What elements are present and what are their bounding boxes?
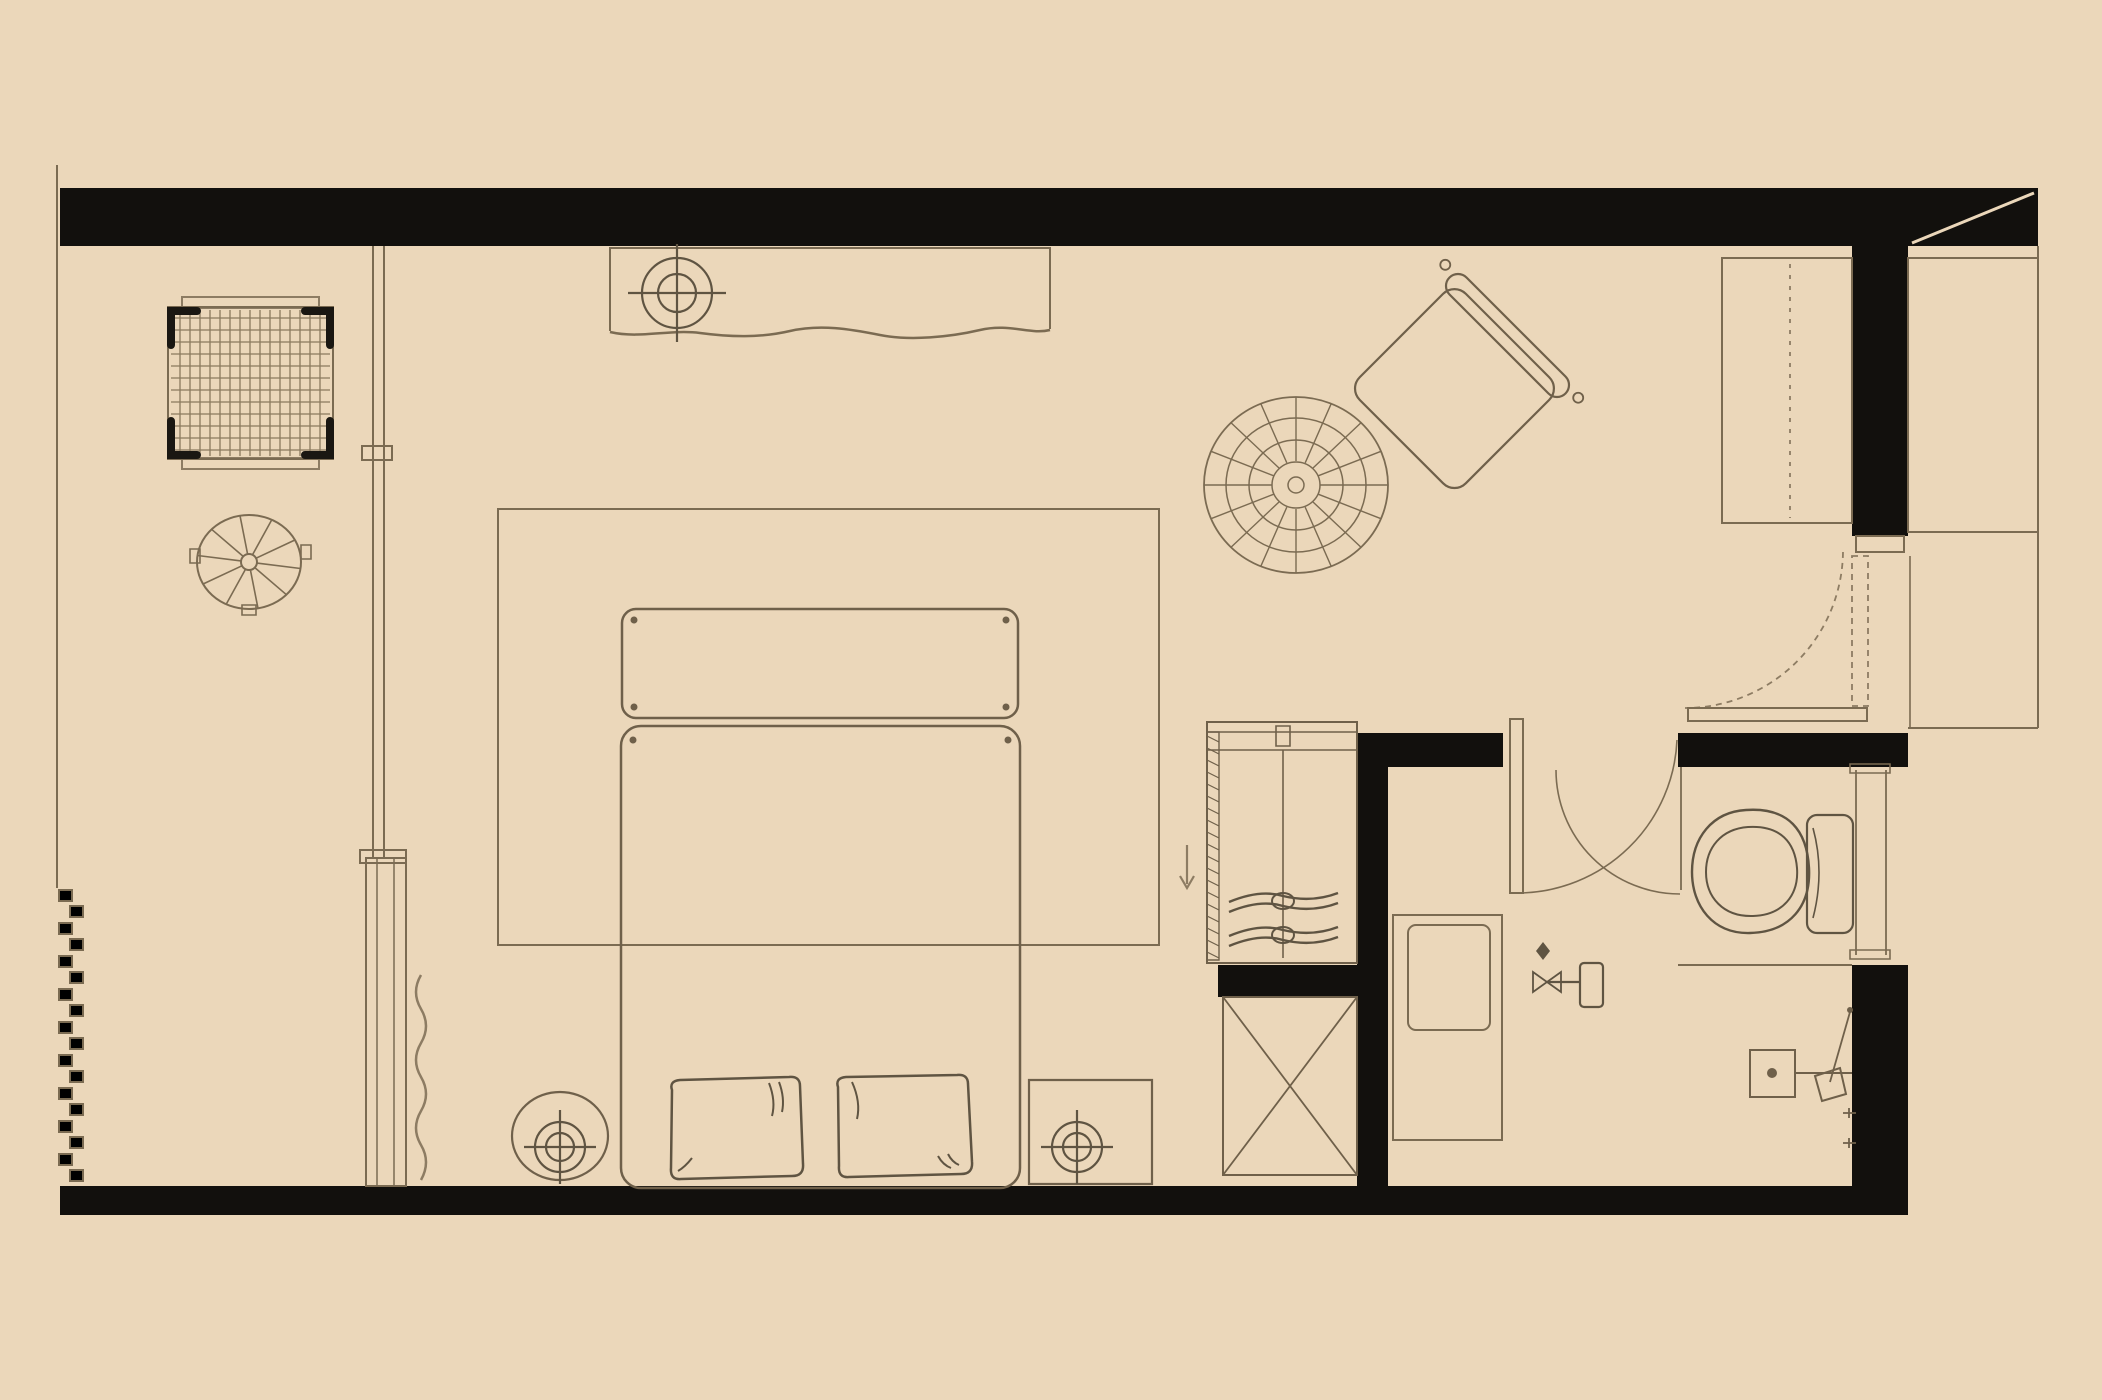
toilet-bowl-inner: [1706, 827, 1797, 916]
vanity-room-door: [1510, 719, 1677, 893]
toilet-room-door: [1556, 767, 1681, 894]
direction-arrow: [1180, 845, 1194, 888]
pillow-right-fold: [852, 1082, 858, 1119]
sliding-door-panel: [366, 858, 406, 1186]
wardrobe-shelf-divider: [1276, 726, 1290, 746]
table-hub: [241, 554, 257, 570]
shower-mixer-dot: [1767, 1068, 1777, 1078]
vanity-door-leaf: [1510, 719, 1523, 893]
mosaic-ring-4: [1272, 462, 1320, 508]
entry-threshold: [1688, 708, 1867, 721]
pillow-left-crease: [678, 1158, 692, 1171]
chair-seat: [1348, 282, 1560, 494]
chair-foot-top: [1438, 258, 1452, 272]
wardrobe: [1207, 722, 1357, 963]
pillow-left: [671, 1077, 803, 1179]
floor-plan: [0, 0, 2102, 1400]
chair-foot-bottom: [1571, 391, 1585, 405]
round-mosaic-rug: [1204, 397, 1388, 573]
closet-corridor-left: [1722, 258, 1852, 523]
toilet: [1692, 810, 1853, 933]
closet-divider-wall: [1357, 733, 1388, 1186]
toilet-tank-curve: [1813, 828, 1819, 918]
outdoor-mat: [168, 297, 333, 469]
vanity-fixture-diamond: [1536, 942, 1550, 960]
curtain-squiggle: [416, 975, 426, 1180]
vanity-fixture-box: [1580, 963, 1603, 1007]
bath-north-wall-east: [1678, 733, 1908, 767]
entry-door: [1685, 536, 1910, 728]
window-joint: [362, 446, 392, 460]
bed: [621, 726, 1020, 1188]
right-wall-upper: [1852, 246, 1908, 536]
shower-area: [1678, 965, 1856, 1148]
lounge-chair: [1331, 257, 1586, 512]
toilet-window: [1850, 764, 1890, 959]
toilet-door-swing-arc: [1556, 770, 1680, 894]
wardrobe-track-strip: [1207, 732, 1219, 960]
pillow-left-fold: [769, 1082, 783, 1116]
bench-outline: [622, 609, 1018, 718]
foot-bench: [622, 609, 1018, 718]
nightstand-lamp-cross: [1041, 1110, 1113, 1184]
entry-wall-tab: [1856, 536, 1904, 552]
top-wall: [60, 188, 1908, 246]
mosaic-spokes: [1204, 397, 1388, 573]
folding-screen-strip: [59, 890, 83, 1181]
utility-cabinet: [1223, 997, 1357, 1175]
entry-door-leaf: [1852, 556, 1868, 706]
bottom-wall: [60, 1186, 1908, 1215]
mosaic-hub: [1288, 477, 1304, 493]
vanity: [1393, 915, 1603, 1140]
vanity-door-swing-arc: [1520, 740, 1677, 893]
bed-outline: [621, 726, 1020, 1188]
console-target-cross: [628, 244, 726, 342]
cabinet-stub-wall: [1218, 965, 1357, 997]
wardrobe-track-hatch: [1207, 736, 1219, 958]
table-spokes: [198, 516, 301, 609]
cabinet-x-mark: [1223, 997, 1357, 1175]
mat-weave-vertical: [180, 310, 320, 456]
round-patio-table: [190, 515, 311, 615]
mat-bracket-top-left: [171, 311, 197, 345]
table-tab-right: [301, 545, 311, 559]
toilet-bowl-outer: [1692, 810, 1809, 933]
mat-bracket-top-right: [305, 311, 330, 345]
console-shelf: [610, 244, 1050, 342]
nightstand-right: [1029, 1080, 1152, 1184]
closet-corridor-right: [1908, 258, 2038, 532]
floor-plan-drawing: [0, 0, 2102, 1400]
pillow-right: [837, 1075, 972, 1177]
entry-door-swing-arc: [1685, 552, 1843, 708]
floor-lamp-left: [512, 1092, 608, 1184]
right-wall-lower: [1852, 965, 1908, 1215]
bench-corner-dots: [634, 620, 1006, 707]
pillow-right-crease: [938, 1154, 959, 1168]
table-rim: [197, 515, 301, 609]
shower-arm-dot: [1847, 1007, 1853, 1013]
closet-left-outline: [1722, 258, 1852, 523]
vanity-basin: [1408, 925, 1490, 1030]
